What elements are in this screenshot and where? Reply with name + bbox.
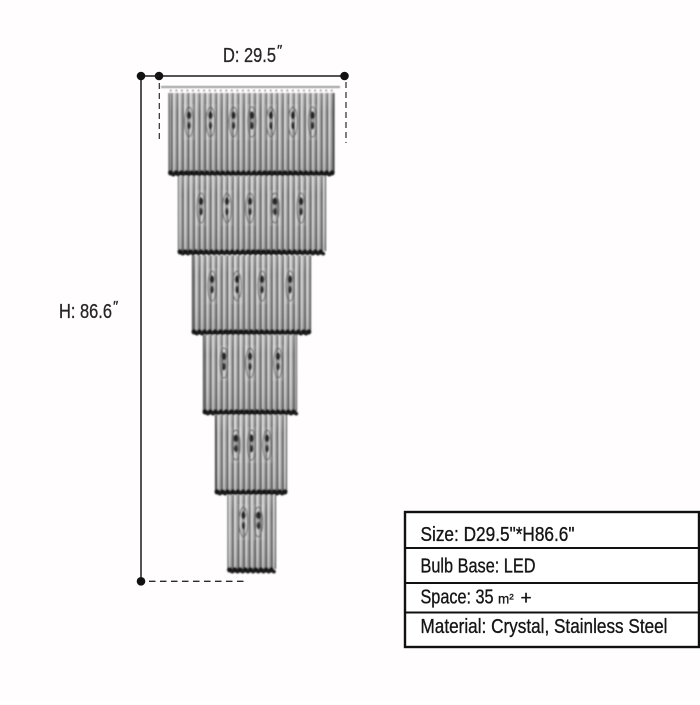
svg-text:m²: m² (498, 592, 514, 607)
svg-text:Material: Crystal, Stainless S: Material: Crystal, Stainless Steel (421, 615, 668, 638)
svg-text:Space: 35: Space: 35 (421, 586, 494, 609)
svg-text:″: ″ (277, 42, 283, 59)
svg-text:″: ″ (113, 298, 119, 315)
svg-text:Size: D29.5"*H86.6": Size: D29.5"*H86.6" (421, 523, 575, 546)
svg-text:+: + (521, 588, 532, 609)
svg-text:Bulb Base: LED: Bulb Base: LED (421, 555, 536, 578)
svg-text:H: 86.6: H: 86.6 (59, 300, 112, 323)
svg-text:D: 29.5: D: 29.5 (223, 44, 276, 67)
